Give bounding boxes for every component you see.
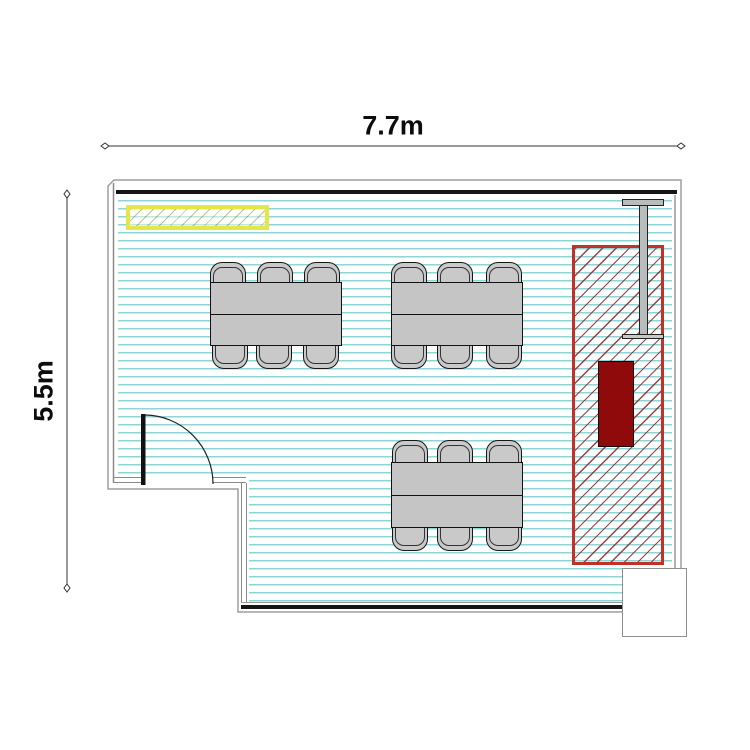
dimension-arrow-icon (64, 190, 70, 198)
door-leaf (141, 414, 146, 485)
bottom-right-recess (622, 568, 687, 637)
dimension-arrow-icon (677, 143, 685, 149)
outer-boundary (108, 180, 681, 612)
wall-notch-top (113, 478, 246, 483)
door-swing-arc (145, 415, 213, 484)
wall-bottom (241, 605, 682, 609)
width-dimension-label: 7.7m (362, 111, 424, 142)
height-dimension-label: 5.5m (29, 360, 60, 422)
dimension-arrow-icon (101, 143, 109, 149)
wall-notch-right (242, 483, 247, 602)
wall-top (116, 190, 677, 194)
floor-plan: 7.7m 5.5m (0, 0, 750, 750)
dimension-arrow-icon (64, 584, 70, 592)
